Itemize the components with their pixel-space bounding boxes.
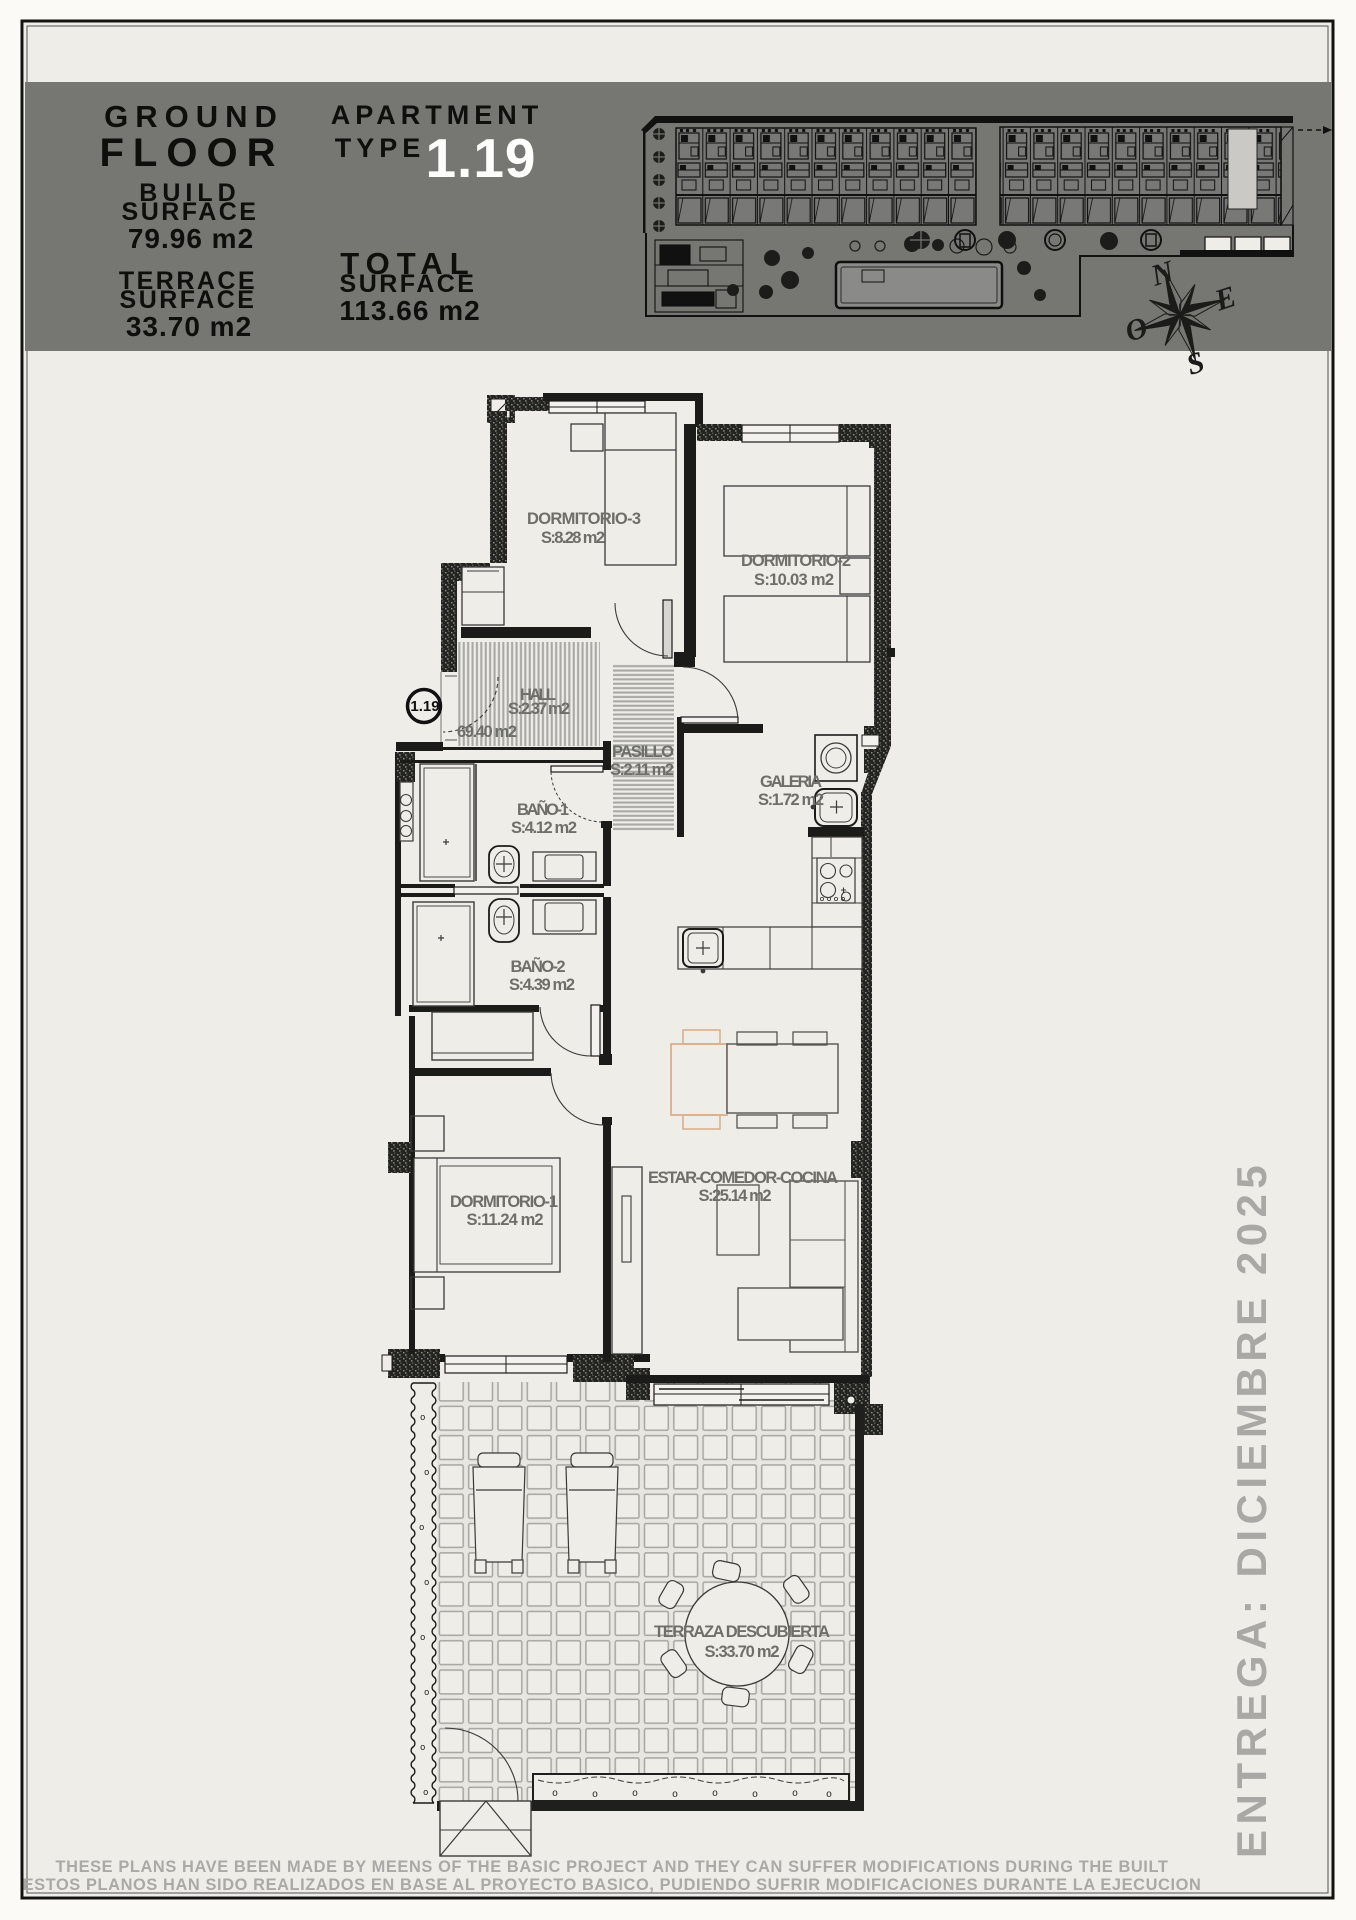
svg-text:S:8.28 m2: S:8.28 m2 [541,529,605,547]
svg-text:ESTOS PLANOS HAN SIDO REALIZAD: ESTOS PLANOS HAN SIDO REALIZADOS EN BASE… [23,1876,1202,1894]
svg-text:S:2.11 m2: S:2.11 m2 [610,761,674,779]
svg-text:GROUND: GROUND [104,99,284,134]
svg-text:FLOOR: FLOOR [100,131,285,175]
svg-text:o: o [592,1790,598,1801]
svg-text:SURFACE: SURFACE [120,286,257,314]
svg-text:TERRAZA DESCUBIERTA: TERRAZA DESCUBIERTA [654,1623,830,1641]
svg-text:DORMITORIO-1: DORMITORIO-1 [450,1193,558,1211]
svg-text:GALERIA: GALERIA [760,773,822,791]
svg-text:S:2.37 m2: S:2.37 m2 [508,700,570,718]
svg-text:o: o [826,1790,832,1801]
svg-text:113.66 m2: 113.66 m2 [339,295,480,326]
svg-text:1.19: 1.19 [410,698,439,715]
svg-text:o: o [424,1578,429,1588]
svg-text:S:1.72 m2: S:1.72 m2 [758,791,824,809]
svg-text:o: o [420,1413,425,1423]
svg-text:1.19: 1.19 [425,127,536,189]
svg-text:S:4.39 m2: S:4.39 m2 [509,976,575,994]
svg-text:o: o [419,1523,424,1533]
svg-text:ESTAR-COMEDOR-COCINA: ESTAR-COMEDOR-COCINA [648,1169,838,1187]
svg-text:S:33.70 m2: S:33.70 m2 [705,1643,780,1661]
svg-text:o: o [420,1633,425,1643]
svg-text:S:11.24 m2: S:11.24 m2 [467,1211,544,1229]
svg-text:S:25.14 m2: S:25.14 m2 [699,1187,772,1205]
svg-text:o: o [672,1790,678,1801]
svg-text:S:10.03 m2: S:10.03 m2 [754,571,834,589]
svg-text:o: o [420,1743,425,1753]
svg-text:BAÑO-1: BAÑO-1 [517,799,569,819]
svg-text:o: o [552,1789,558,1800]
svg-text:TYPE: TYPE [335,133,426,163]
svg-text:ENTREGA: DICIEMBRE 2025: ENTREGA: DICIEMBRE 2025 [1228,1160,1275,1858]
svg-text:APARTMENT: APARTMENT [331,100,543,130]
svg-text:o: o [712,1789,718,1800]
svg-text:S:4.12 m2: S:4.12 m2 [511,819,577,837]
svg-text:o: o [423,1788,428,1798]
svg-text:o: o [632,1789,638,1800]
svg-text:69.40 m2: 69.40 m2 [457,723,517,741]
svg-text:o: o [792,1789,798,1800]
svg-text:BAÑO-2: BAÑO-2 [511,956,566,976]
svg-text:33.70 m2: 33.70 m2 [126,311,252,342]
svg-text:79.96 m2: 79.96 m2 [128,223,254,254]
svg-text:THESE PLANS HAVE BEEN MADE BY: THESE PLANS HAVE BEEN MADE BY MEENS OF T… [56,1858,1169,1876]
svg-text:PASILLO: PASILLO [612,743,674,761]
svg-text:o: o [752,1790,758,1801]
svg-text:SURFACE: SURFACE [340,270,477,298]
svg-text:DORMITORIO-3: DORMITORIO-3 [527,510,641,528]
svg-text:o: o [424,1688,429,1698]
svg-text:DORMITORIO-2: DORMITORIO-2 [741,552,851,570]
svg-text:o: o [424,1468,429,1478]
svg-text:SURFACE: SURFACE [122,198,259,226]
